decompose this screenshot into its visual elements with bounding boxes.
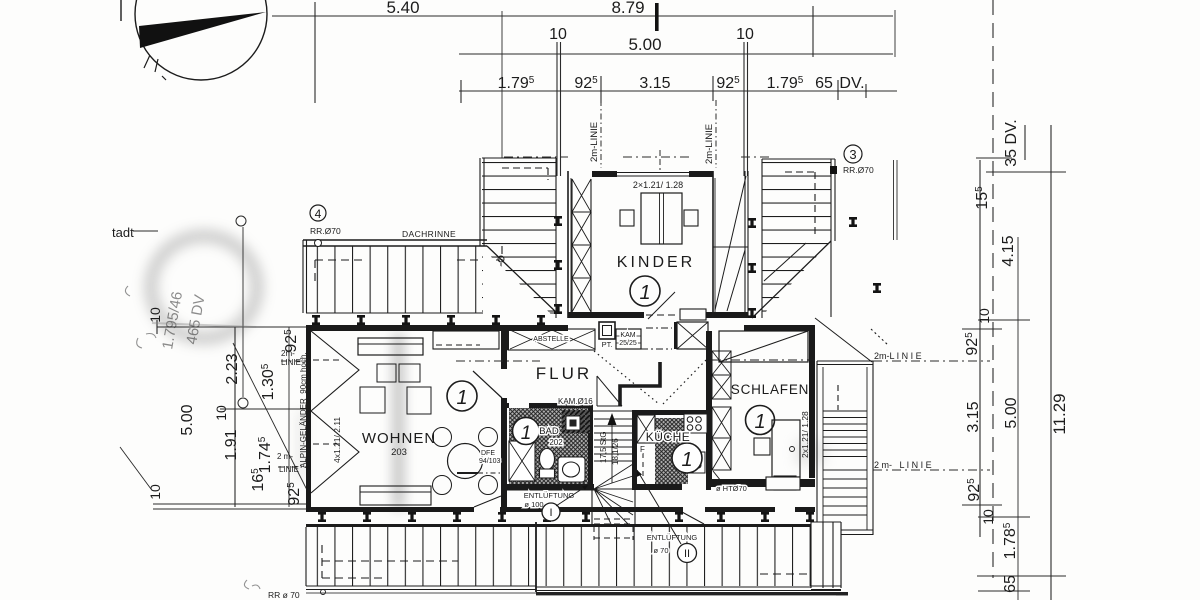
svg-text:LINIE: LINIE xyxy=(281,358,301,367)
svg-text:KAM: KAM xyxy=(620,332,635,339)
svg-text:PT.: PT. xyxy=(602,340,613,349)
svg-text:94/103: 94/103 xyxy=(479,458,501,465)
svg-text:11.29: 11.29 xyxy=(1050,393,1069,434)
svg-text:10: 10 xyxy=(147,484,163,500)
svg-text:ø 100: ø 100 xyxy=(524,500,543,509)
svg-text:8.79: 8.79 xyxy=(611,0,644,17)
svg-text:DV.: DV. xyxy=(839,75,864,92)
svg-text:2m-: 2m- xyxy=(281,349,295,358)
svg-text:ø HTØ70: ø HTØ70 xyxy=(716,484,747,493)
svg-text:5.00: 5.00 xyxy=(1003,397,1020,428)
svg-text:1: 1 xyxy=(754,411,765,433)
svg-text:1.91: 1.91 xyxy=(223,429,240,460)
svg-text:202: 202 xyxy=(549,438,563,447)
svg-text:10: 10 xyxy=(736,26,754,43)
svg-text:tadt: tadt xyxy=(112,225,134,240)
svg-text:1: 1 xyxy=(456,387,467,409)
svg-text:ABSTELLE: ABSTELLE xyxy=(533,336,569,343)
svg-text:F: F xyxy=(640,445,645,454)
svg-text:10: 10 xyxy=(980,509,996,525)
svg-text:ENTLÜFTUNG: ENTLÜFTUNG xyxy=(647,533,698,542)
svg-text:1: 1 xyxy=(521,423,532,444)
svg-text:2m-LINIE: 2m-LINIE xyxy=(704,124,715,164)
svg-text:3: 3 xyxy=(849,147,856,162)
svg-text:10: 10 xyxy=(213,405,229,421)
svg-text:II: II xyxy=(684,548,690,560)
svg-text:3.15: 3.15 xyxy=(639,75,670,92)
svg-text:4: 4 xyxy=(315,207,322,221)
svg-text:5.00: 5.00 xyxy=(628,35,661,54)
svg-text:25/25: 25/25 xyxy=(619,340,637,347)
svg-text:10: 10 xyxy=(549,26,567,43)
svg-text:2 m- L I N I E: 2 m- L I N I E xyxy=(874,460,932,470)
svg-text:18,1/26: 18,1/26 xyxy=(611,438,620,465)
svg-text:203: 203 xyxy=(391,447,407,458)
svg-text:I: I xyxy=(549,507,552,519)
svg-text:4x1.21/ 2.11: 4x1.21/ 2.11 xyxy=(332,417,342,463)
svg-text:4.15: 4.15 xyxy=(1000,235,1017,266)
svg-text:65: 65 xyxy=(1002,575,1019,593)
svg-text:1: 1 xyxy=(639,282,650,304)
svg-text:1: 1 xyxy=(681,449,692,471)
svg-text:SCHLAFEN: SCHLAFEN xyxy=(731,382,809,397)
svg-text:ø 70: ø 70 xyxy=(653,546,668,555)
svg-text:FLUR: FLUR xyxy=(536,364,592,383)
svg-text:35 DV.: 35 DV. xyxy=(1003,119,1020,166)
svg-text:17,5 StG: 17,5 StG xyxy=(599,431,608,463)
svg-text:5.40: 5.40 xyxy=(386,0,419,17)
svg-text:10: 10 xyxy=(976,308,992,324)
svg-text:5.00: 5.00 xyxy=(179,404,196,435)
svg-text:WOHNEN: WOHNEN xyxy=(362,430,436,447)
svg-text:10: 10 xyxy=(147,307,163,323)
svg-text:2m-LINIE: 2m-LINIE xyxy=(589,122,600,162)
svg-text:3.15: 3.15 xyxy=(965,401,982,432)
svg-text:BAD: BAD xyxy=(539,426,559,437)
svg-text:KAM.Ø16: KAM.Ø16 xyxy=(558,397,593,406)
svg-text:KÜCHE: KÜCHE xyxy=(646,430,691,444)
svg-text:2 m-: 2 m- xyxy=(277,452,293,461)
svg-text:RR.Ø70: RR.Ø70 xyxy=(843,165,874,175)
svg-text:2m-L I N I E: 2m-L I N I E xyxy=(874,351,922,361)
svg-text:2.23: 2.23 xyxy=(224,353,241,384)
svg-text:KINDER: KINDER xyxy=(617,254,695,271)
svg-text:DACHRINNE: DACHRINNE xyxy=(402,229,456,239)
svg-text:65: 65 xyxy=(815,75,833,92)
svg-text:2×1.21/ 1.28: 2×1.21/ 1.28 xyxy=(633,180,683,190)
svg-text:RR.Ø70: RR.Ø70 xyxy=(310,226,341,236)
svg-text:RR ø 70: RR ø 70 xyxy=(268,590,300,600)
svg-text:DFE: DFE xyxy=(481,450,495,457)
svg-text:2x1.21/ 1.28: 2x1.21/ 1.28 xyxy=(800,411,810,458)
svg-text:LINIE: LINIE xyxy=(279,465,299,474)
